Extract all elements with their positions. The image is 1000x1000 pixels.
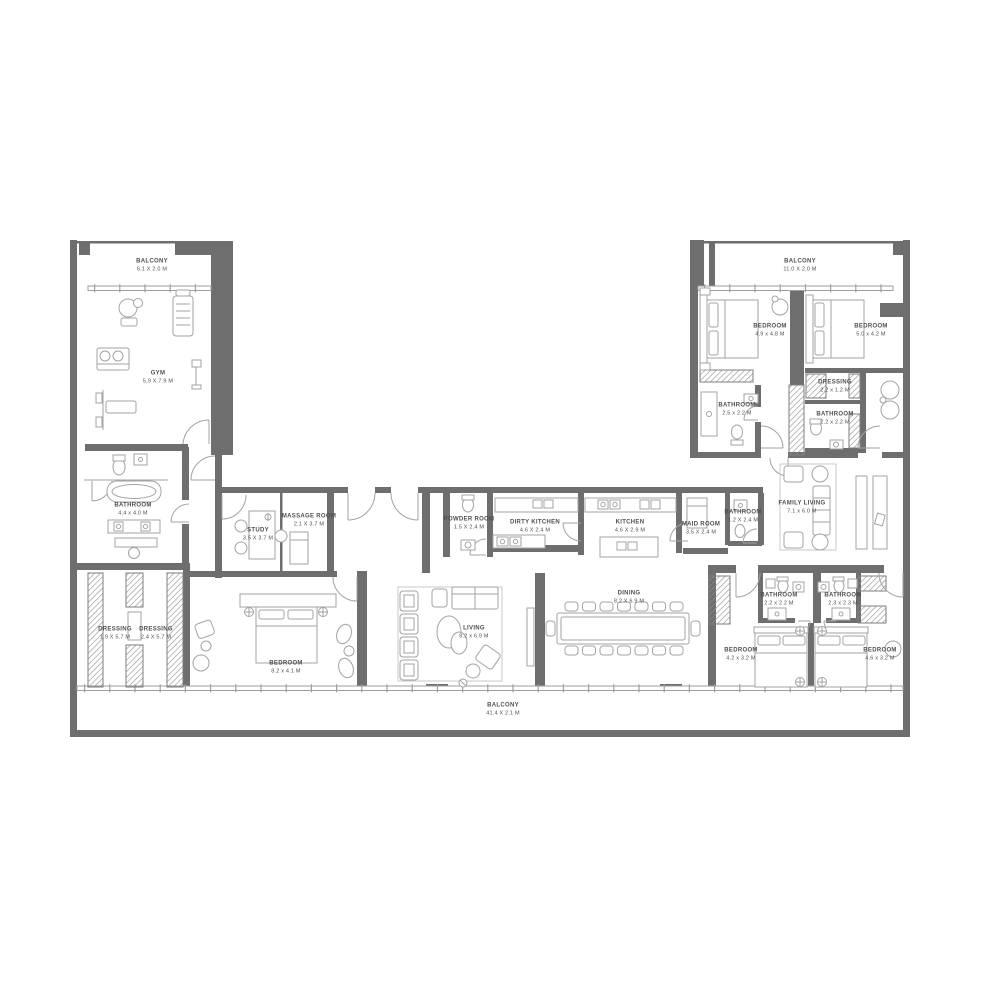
room-dims: 1.9 X 5.7 M [98,634,132,642]
room-dims: 7.1 x 6.0 M [779,508,826,516]
room-label-balcony-top-right: BALCONY 11.0 X 2.0 M [783,258,816,275]
room-name: BEDROOM [753,323,786,332]
floor-plan-canvas: BALCONY 6.1 X 2.0 M GYM 5.9 X 7.9 M BATH… [0,0,1000,1000]
room-dims: 4.9 x 4.8 M [753,331,786,339]
room-label-dirty-kitchen: DIRTY KITCHEN 4.6 X 2.4 M [510,519,560,536]
room-name: DRESSING [139,626,173,635]
room-dims: 5.0 x 4.2 M [854,331,887,339]
room-label-study: STUDY 3.5 X 3.7 M [243,527,273,544]
room-name: MASSAGE ROOM [282,513,336,522]
room-name: BATHROOM [760,592,797,601]
room-name: BATHROOM [816,411,853,420]
room-dims: 2.1 X 3.7 M [282,521,336,529]
room-name: GYM [143,370,173,379]
room-name: BATHROOM [824,592,861,601]
massage-room-furniture [290,532,308,564]
room-dims: 8.2 X 6.9 M [614,598,644,606]
room-label-bedroom-bottom-right-1: BEDROOM 4.2 x 3.2 M [724,647,757,664]
room-dims: 8.2 x 4.1 M [269,668,302,676]
room-label-bathroom-bottom-right-2: BATHROOM 2.3 x 2.3 M [824,592,861,609]
room-label-bedroom-master: BEDROOM 8.2 x 4.1 M [269,660,302,677]
room-label-massage-room: MASSAGE ROOM 2.1 X 3.7 M [282,513,336,530]
room-name: MAID ROOM [682,521,720,530]
study-door [222,495,246,519]
room-name: BEDROOM [863,647,896,656]
room-dims: 4.2 x 3.2 M [724,655,757,663]
room-label-bathroom-bottom-right-1: BATHROOM 2.2 x 2.2 M [760,592,797,609]
master-bath-door [171,504,189,522]
room-dims: 3.5 X 3.7 M [243,535,273,543]
room-dims: 2.5 x 2.2 M [718,410,755,418]
room-name: BALCONY [486,702,520,711]
room-name: BEDROOM [724,647,757,656]
room-label-family-living: FAMILY LIVING 7.1 x 6.0 M [779,500,826,517]
room-dims: 4.6 X 2.4 M [510,527,560,535]
room-name: POWDER ROOM [444,516,495,525]
floorplan-drawing [0,0,1000,1000]
room-dims: 1.5 X 2.4 M [444,524,495,532]
room-label-dressing-left-1: DRESSING 1.9 X 5.7 M [98,626,132,643]
room-label-bedroom-top-right-1: BEDROOM 4.9 x 4.8 M [753,323,786,340]
room-label-balcony-top-left: BALCONY 6.1 X 2.0 M [136,258,168,275]
room-dims: 5.9 X 7.9 M [143,378,173,386]
room-name: BEDROOM [854,323,887,332]
room-dims: 2.4 X 5.7 M [139,634,173,642]
room-name: LIVING [459,625,488,634]
room-dims: 2.3 x 2.3 M [824,600,861,608]
room-dims: 41.4 X 2.1 M [486,710,520,718]
room-dims: 4.6 X 2.9 M [615,527,645,535]
room-label-bedroom-bottom-right-2: BEDROOM 4.6 x 3.2 M [863,647,896,664]
room-label-dressing-top-right: DRESSING 2.2 x 1.2 M [818,379,852,396]
room-name: STUDY [243,527,273,536]
room-label-bedroom-top-right-2: BEDROOM 5.0 x 4.2 M [854,323,887,340]
gym-furniture [96,290,201,430]
room-label-kitchen: KITCHEN 4.6 X 2.9 M [615,519,645,536]
room-label-dining: DINING 8.2 X 6.9 M [614,590,644,607]
room-name: BATHROOM [114,502,151,511]
room-name: DRESSING [818,379,852,388]
dining-furniture [546,602,700,655]
room-name: DINING [614,590,644,599]
entry-door-2 [391,493,418,520]
corridor-door [191,456,215,480]
room-name: DRESSING [98,626,132,635]
room-label-balcony-bottom: BALCONY 41.4 X 2.1 M [486,702,520,719]
room-name: BEDROOM [269,660,302,669]
room-dims: 2.2 x 2.2 M [816,419,853,427]
room-name: DIRTY KITCHEN [510,519,560,528]
room-label-dressing-left-2: DRESSING 2.4 X 5.7 M [139,626,173,643]
room-dims: 2.2 x 2.2 M [760,600,797,608]
room-dims: 6.1 X 2.0 M [136,266,168,274]
bedroom-br1-door [736,573,760,597]
room-label-gym: GYM 5.9 X 7.9 M [143,370,173,387]
master-bedroom-door [333,577,357,601]
tr-corridor-door-1 [761,426,783,448]
entry-door-1 [348,493,375,520]
room-name: KITCHEN [615,519,645,528]
room-label-bathroom-top-right-1: BATHROOM 2.5 x 2.2 M [718,402,755,419]
room-dims: 4.6 x 3.2 M [863,655,896,663]
room-label-maid-room: MAID ROOM 3.5 X 2.4 M [682,521,720,538]
room-name: BATHROOM [724,509,761,518]
room-label-powder-room: POWDER ROOM 1.5 X 2.4 M [444,516,495,533]
room-label-living: LIVING 8.2 x 6.9 M [459,625,488,642]
room-dims: 3.5 X 2.4 M [682,529,720,537]
room-dims: 2.2 x 1.2 M [818,387,852,395]
bathroom-tr1-fixtures [701,392,758,445]
room-name: BALCONY [136,258,168,267]
gym-door [183,420,209,444]
room-label-bathroom-maid: BATHROOM 1.2 X 2.4 M [724,509,761,526]
room-label-bathroom-top-right-2: BATHROOM 2.2 x 2.2 M [816,411,853,428]
room-name: BALCONY [783,258,816,267]
room-name: FAMILY LIVING [779,500,826,509]
room-dims: 4.4 x 4.0 M [114,510,151,518]
room-dims: 1.2 X 2.4 M [724,517,761,525]
room-dims: 8.2 x 6.9 M [459,633,488,641]
room-dims: 11.0 X 2.0 M [783,266,816,274]
room-name: BATHROOM [718,402,755,411]
room-label-bathroom-master: BATHROOM 4.4 x 4.0 M [114,502,151,519]
